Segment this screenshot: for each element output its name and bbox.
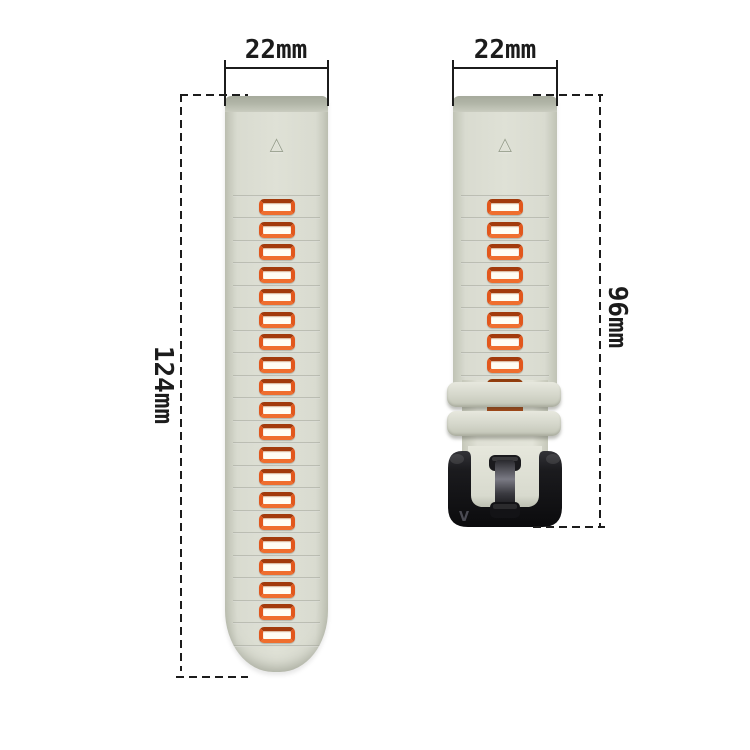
strap-hole: [487, 267, 523, 283]
strap-groove: [233, 555, 320, 557]
right-strap-lug-end: [453, 96, 557, 112]
strap-hole: [259, 447, 295, 463]
strap-groove: [461, 352, 549, 354]
left-top-extension-dash: [180, 94, 248, 96]
right-width-dim-tick: [452, 60, 454, 106]
strap-groove: [233, 510, 320, 512]
strap-hole: [259, 402, 295, 418]
buckle-logo: V: [459, 510, 469, 525]
left-length-dim-label: 124mm: [150, 330, 176, 440]
buckle: V: [440, 446, 570, 534]
strap-groove: [233, 600, 320, 602]
strap-hole: [487, 289, 523, 305]
strap-groove: [233, 442, 320, 444]
strap-hole: [259, 244, 295, 260]
keeper-loop-1: [447, 382, 561, 407]
strap-groove: [233, 352, 320, 354]
strap-hole: [487, 312, 523, 328]
strap-hole: [487, 199, 523, 215]
strap-hole: [259, 514, 295, 530]
left-width-dim-tick: [327, 60, 329, 106]
strap-hole: [259, 222, 295, 238]
strap-hole: [259, 582, 295, 598]
right-length-dim-label: 96mm: [604, 272, 630, 362]
left-width-dim-tick: [224, 60, 226, 106]
strap-hole: [487, 357, 523, 373]
left-bottom-extension-dash: [176, 676, 248, 678]
strap-groove: [461, 285, 549, 287]
strap-groove: [461, 262, 549, 264]
strap-hole: [259, 379, 295, 395]
right-bottom-extension-dash: [533, 526, 605, 528]
right-length-dim-dash: [599, 94, 601, 528]
right-width-dim-label: 22mm: [435, 37, 575, 63]
left-width-dim-line: [225, 67, 329, 69]
strap-groove: [233, 375, 320, 377]
strap-hole: [487, 244, 523, 260]
strap-groove: [233, 262, 320, 264]
buckle-tang-foot-highlight: [493, 504, 517, 509]
product-dimension-diagram: △ △: [0, 0, 750, 750]
strap-groove: [233, 217, 320, 219]
right-width-dim-line: [453, 67, 558, 69]
strap-groove: [233, 307, 320, 309]
strap-groove: [233, 622, 320, 624]
buckle-tang: [495, 460, 515, 508]
left-strap: △: [225, 96, 328, 672]
strap-groove: [233, 577, 320, 579]
strap-groove: [233, 532, 320, 534]
strap-groove: [461, 330, 549, 332]
strap-hole: [259, 537, 295, 553]
triangle-logo-icon: △: [225, 136, 328, 154]
strap-groove: [233, 195, 320, 197]
strap-hole: [259, 289, 295, 305]
left-width-dim-label: 22mm: [206, 37, 346, 63]
strap-hole: [259, 627, 295, 643]
strap-groove: [233, 487, 320, 489]
right-top-extension-dash: [533, 94, 603, 96]
strap-groove: [233, 240, 320, 242]
strap-hole: [259, 199, 295, 215]
strap-hole: [259, 424, 295, 440]
strap-hole: [259, 469, 295, 485]
strap-groove: [461, 240, 549, 242]
strap-groove: [233, 645, 320, 647]
strap-hole: [259, 559, 295, 575]
right-width-dim-tick: [556, 60, 558, 106]
strap-hole: [259, 357, 295, 373]
strap-hole: [259, 267, 295, 283]
buckle-arm-highlight: [546, 454, 560, 464]
strap-groove: [461, 375, 549, 377]
strap-groove: [233, 465, 320, 467]
strap-groove: [233, 285, 320, 287]
strap-groove: [461, 307, 549, 309]
strap-groove: [233, 330, 320, 332]
strap-hole: [487, 334, 523, 350]
strap-hole: [259, 312, 295, 328]
keeper-loop-2: [447, 411, 561, 436]
strap-groove: [461, 217, 549, 219]
triangle-logo-icon: △: [453, 136, 557, 154]
strap-groove: [461, 195, 549, 197]
strap-hole: [259, 334, 295, 350]
strap-groove: [233, 420, 320, 422]
left-strap-lug-end: [225, 96, 328, 112]
strap-groove: [233, 397, 320, 399]
right-strap: △: [453, 96, 557, 388]
left-length-dim-dash: [180, 94, 182, 671]
strap-hole: [259, 604, 295, 620]
strap-hole: [487, 222, 523, 238]
buckle-arm-highlight: [450, 454, 464, 464]
strap-hole: [259, 492, 295, 508]
